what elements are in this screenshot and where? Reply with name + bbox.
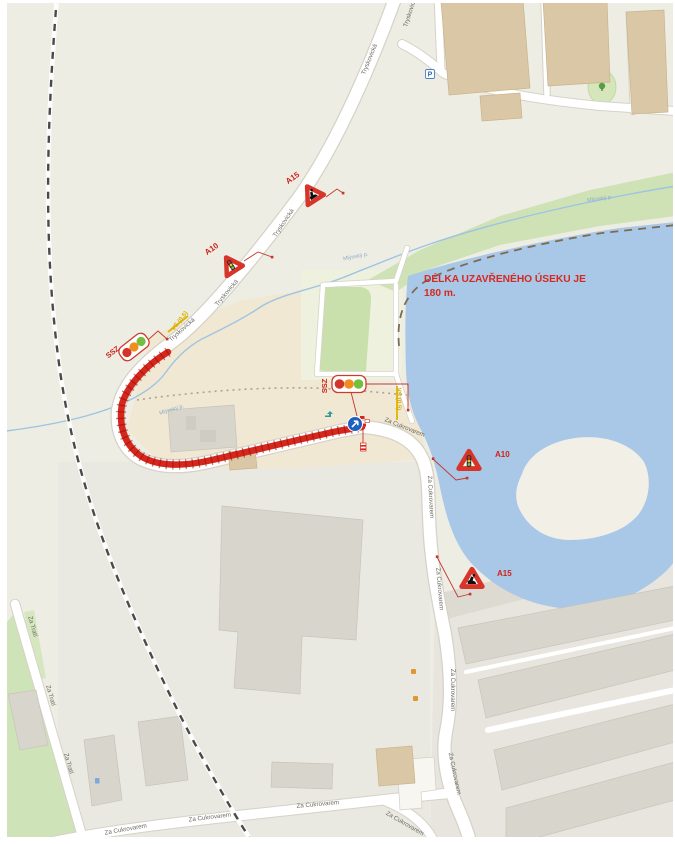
small-blue-icon [95,778,100,784]
detour-direction-sign [348,417,363,432]
leader-dot [271,256,274,259]
traffic-closure-plan-page: P Tryskovická Tryskovická Tryskovická Tr… [0,0,675,844]
signal-glyph-amber [467,459,470,462]
barrier-post-stripe [361,448,367,450]
signal-glyph-red [467,456,470,459]
amenity-icon [413,696,418,701]
park-green [317,287,371,371]
signal-glyph-green [467,463,470,466]
cable-label-vs: VS (0,5) [395,388,402,411]
building-gray [138,716,188,786]
amenity-icon [411,669,416,674]
apartment-building [626,10,668,114]
building-gray [271,762,333,789]
building-gray [168,405,237,452]
leader-dot [466,477,469,480]
signal-red-lamp [335,379,345,389]
barrier-stripe [365,420,370,423]
sign-label-a15: A15 [497,569,512,578]
barrier-post-stripe [361,445,367,447]
building-tan [376,746,415,786]
roadworks-glyph-head [473,574,476,577]
leader-dot [407,409,410,412]
signal-green-lamp [354,379,364,389]
ssz-label: SSZ [320,378,329,393]
apartment-building [441,0,530,95]
parking-icon-letter: P [428,72,433,79]
parking-icon: P [426,70,435,79]
signal-amber-lamp [344,379,354,389]
leader-dot [469,593,472,596]
closure-plan-map: P Tryskovická Tryskovická Tryskovická Tr… [0,0,675,844]
apartment-building [480,93,522,121]
map-canvas: P Tryskovická Tryskovická Tryskovická Tr… [6,0,675,844]
street-label-za-cukrovarem: Za Cukrovarem [449,669,456,712]
road-stub-north [438,0,441,70]
building-detail [186,416,196,430]
tree-trunk [601,88,602,91]
leader-dot [342,192,345,195]
closure-note-line2: 180 m. [424,288,456,299]
tree-crown [599,83,605,89]
closure-note-line1: DÉLKA UZAVŘENÉHO ÚSEKU JE [424,272,586,285]
leader-dot [432,457,435,460]
building-detail [200,430,216,442]
sign-label-a10: A10 [495,450,510,459]
traffic-light-device-2 [332,376,366,393]
leader-dot [436,555,439,558]
apartment-building [543,0,610,86]
